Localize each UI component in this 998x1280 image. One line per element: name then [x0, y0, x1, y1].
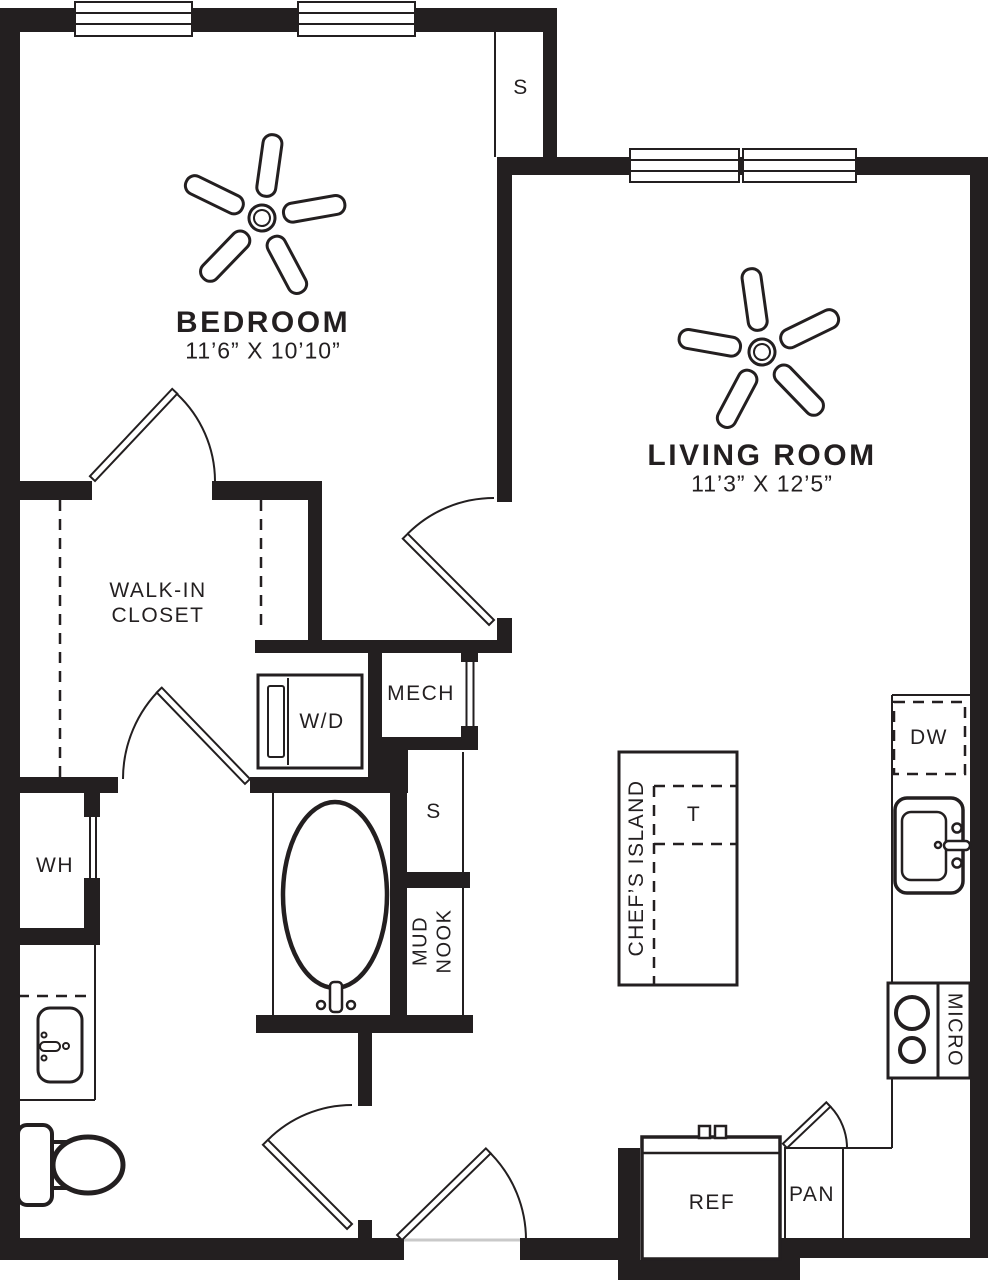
mud-nook-line1: MUD [409, 909, 433, 974]
wh-door [90, 817, 96, 878]
bedroom-dims: 11’6” X 10’10” [185, 338, 341, 365]
window-icon [743, 149, 856, 182]
bathtub-icon [283, 802, 387, 1012]
ceiling-fan-icon [668, 257, 854, 436]
fixtures-layer [0, 0, 998, 1280]
living-room-label: LIVING ROOM [647, 439, 876, 473]
door-swing-icon [123, 688, 250, 784]
mech-door [467, 662, 474, 726]
vanity-sink-icon [38, 1008, 82, 1082]
living-room-dims: 11’3” X 12’5” [691, 471, 833, 498]
mud-nook-label: MUD NOOK [409, 909, 456, 974]
walk-in-closet-line1: WALK-IN [109, 579, 206, 604]
door-swing-icon [783, 1102, 847, 1148]
door-swing-icon [263, 1105, 352, 1229]
dashed-lines [18, 500, 261, 996]
kitchen-sink-icon [895, 798, 970, 893]
chefs-island-label: CHEF’S ISLAND [625, 779, 649, 956]
mud-nook-line2: NOOK [433, 909, 457, 974]
ceiling-fan-icon [170, 123, 356, 302]
window-icon [630, 149, 739, 182]
microwave-label: MICRO [943, 993, 966, 1067]
storage-top-label: S [513, 76, 529, 100]
dishwasher-label: DW [910, 726, 948, 750]
walk-in-closet-line2: CLOSET [109, 604, 206, 629]
storage-mid-label: S [426, 800, 442, 824]
washer-dryer-label: W/D [299, 710, 344, 734]
door-swing-icon [403, 498, 494, 625]
mechanical-label: MECH [387, 682, 455, 706]
island-t-label: T [687, 803, 701, 827]
walk-in-closet-label: WALK-IN CLOSET [109, 579, 206, 629]
door-swing-icon [397, 1148, 526, 1240]
refrigerator-label: REF [689, 1191, 736, 1215]
water-heater-label: WH [36, 854, 74, 878]
door-swing-icon [90, 389, 215, 481]
window-icon [298, 2, 415, 36]
window-icon [75, 2, 192, 36]
bedroom-label: BEDROOM [176, 306, 350, 340]
toilet-icon [18, 1125, 123, 1205]
pantry-label: PAN [789, 1183, 835, 1207]
floor-plan: BEDROOM 11’6” X 10’10” LIVING ROOM 11’3”… [0, 0, 998, 1280]
